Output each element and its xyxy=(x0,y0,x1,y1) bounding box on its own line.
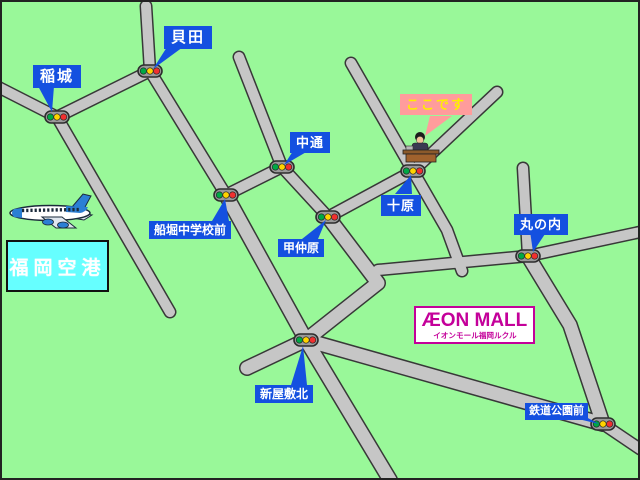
route-map: 稲城 貝田 中通 船堀中学校前 甲仲原 十原 丸の内 新屋敷北 鉄道公園前 ここ… xyxy=(0,0,640,480)
callout-marunouchi: 丸の内 xyxy=(514,214,568,235)
callout-koko-desu: ここです xyxy=(400,94,472,115)
traffic-light-icon-juhara xyxy=(401,165,425,177)
traffic-light-icon-marunouchi xyxy=(516,250,540,262)
callout-kaida: 貝田 xyxy=(164,26,212,49)
traffic-light-icon-shinyashiki xyxy=(294,334,318,346)
airport-label: 福岡空港 xyxy=(9,253,105,280)
airplane-icon xyxy=(10,194,92,228)
callout-shinyashiki-kita: 新屋敷北 xyxy=(255,385,313,403)
airport-label-box: 福岡空港 xyxy=(6,240,109,292)
callout-inagi: 稲城 xyxy=(33,65,81,88)
traffic-light-icon-inagi xyxy=(45,111,69,123)
callout-konakahara: 甲仲原 xyxy=(278,239,324,257)
traffic-light-icon-tetsudo xyxy=(591,418,615,430)
callout-tetsudo-koen-mae: 鉄道公園前 xyxy=(525,403,588,420)
callout-funabori-chugakko-mae: 船堀中学校前 xyxy=(149,221,231,239)
callout-nakadori: 中通 xyxy=(290,132,330,153)
traffic-light-icon-kaida xyxy=(138,65,162,77)
callout-juhara: 十原 xyxy=(381,195,421,216)
aeon-mall-subtitle: イオンモール福岡ルクル xyxy=(433,332,516,340)
aeon-mall-title: ÆON MALL xyxy=(422,311,528,330)
traffic-light-icon-nakadori xyxy=(270,161,294,173)
aeon-mall-logo: ÆON MALL イオンモール福岡ルクル xyxy=(414,306,535,344)
traffic-light-icon-konakahara xyxy=(316,211,340,223)
traffic-light-icon-funabori xyxy=(214,189,238,201)
